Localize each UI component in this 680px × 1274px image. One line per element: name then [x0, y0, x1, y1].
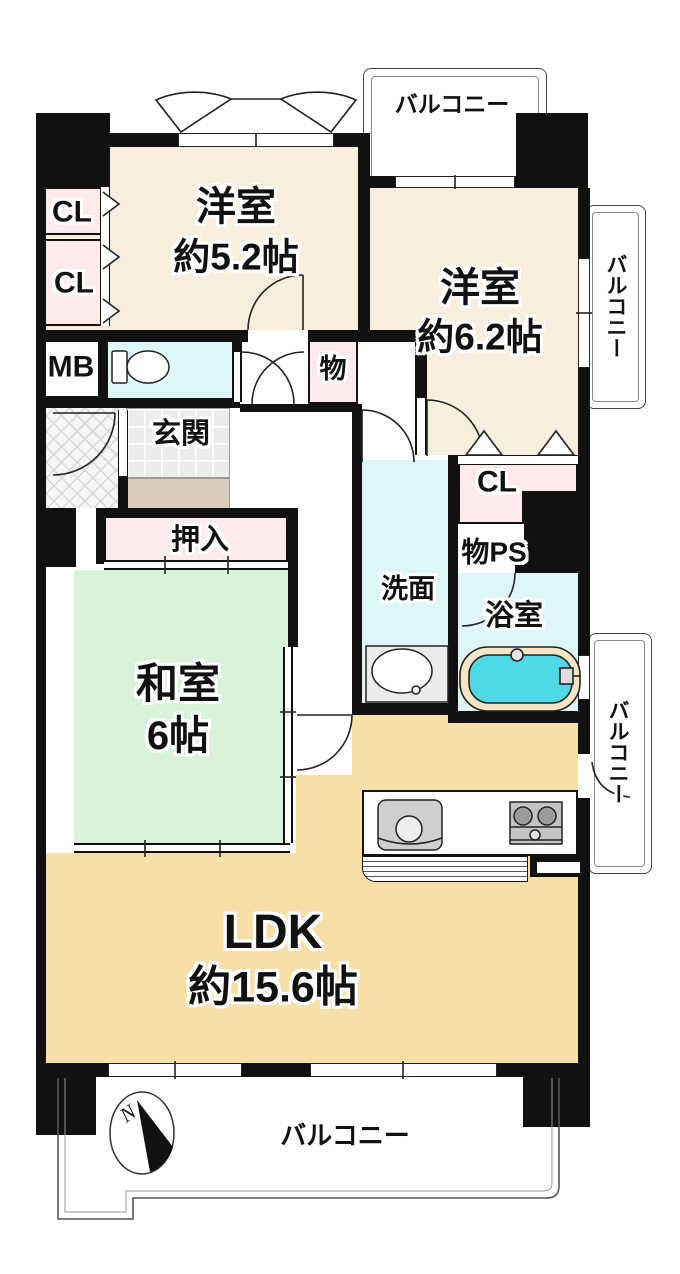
wall-under-toilet — [36, 398, 240, 408]
fusuma-tatami-bottom — [74, 843, 290, 853]
fusuma-oshiire — [104, 560, 288, 570]
wall-oshiire-left — [96, 516, 104, 564]
label-balcony-top: バルコニー — [395, 92, 510, 116]
wall-left — [36, 113, 46, 1075]
closet-cl-right-top — [458, 463, 578, 493]
window-bathroom — [578, 655, 590, 700]
door-ldk-balcony — [578, 752, 590, 800]
label-meter-box: MB — [48, 351, 95, 383]
label-futon-closet: 押入 — [171, 525, 229, 555]
floor-plan: N 洋室 約5.2帖 洋室 約6.2帖 和室 6帖 LDK 約15.6帖 CL … — [0, 0, 680, 1274]
wall-above-oshiire — [96, 508, 298, 518]
wall-bath-bottom — [448, 711, 590, 723]
wall-toilet-right-stub — [232, 336, 242, 352]
entrance-porch — [44, 408, 126, 508]
kitchen-counter-front — [362, 856, 528, 882]
wall-right-3 — [578, 700, 590, 752]
wall-washroom-left — [352, 412, 362, 715]
label-western52-name: 洋室 — [196, 186, 276, 228]
label-cl-2: CL — [54, 267, 94, 299]
compass-north-label: N — [114, 1099, 141, 1128]
label-ldk-name: LDK — [224, 908, 323, 958]
bay-window-sill — [178, 133, 334, 147]
wall-bath-left — [448, 463, 458, 713]
wall-w52-bottom-b — [308, 330, 427, 342]
label-tatami-name: 和室 — [136, 662, 220, 706]
hallway-upper — [358, 342, 415, 455]
window-w62-top — [395, 176, 515, 188]
label-western62-size: 約6.2帖 — [417, 319, 542, 358]
bay-window-fan-right — [281, 92, 356, 132]
door-arc-toilet — [242, 352, 294, 404]
window-ldk-bottom-b — [310, 1063, 497, 1077]
wall-right-4 — [578, 800, 590, 1075]
label-bathroom: 浴室 — [485, 601, 543, 631]
wall-oshiire-right — [288, 508, 298, 570]
wall-corner-tr — [516, 113, 588, 185]
wall-right-2 — [578, 368, 590, 655]
wall-right-1 — [578, 188, 590, 258]
door-gap-w62 — [415, 398, 427, 455]
label-entrance: 玄関 — [152, 419, 210, 449]
wall-corner-br — [523, 1072, 590, 1127]
label-storage: 物 — [320, 355, 347, 383]
window-w62-right — [578, 258, 590, 368]
window-ldk-bottom-a — [108, 1063, 242, 1077]
label-storage-ps: 物PS — [461, 537, 526, 566]
wall-washroom-bottom — [352, 703, 458, 715]
label-washroom: 洗面 — [381, 575, 435, 603]
wall-hall-top — [240, 404, 362, 412]
room-bathroom — [458, 573, 578, 711]
label-western52-size: 約5.2帖 — [173, 239, 298, 278]
door-arc-storage — [252, 352, 304, 404]
label-cl-right: CL — [477, 466, 517, 498]
label-ldk-size: 約15.6帖 — [188, 965, 358, 1010]
label-balcony-bottom: バルコニー — [280, 1122, 409, 1149]
label-balcony-right-upper: バルコニー — [604, 254, 626, 359]
wall-mb-toilet — [100, 336, 108, 402]
compass-icon: N — [110, 1092, 174, 1174]
bay-window-fan-left — [156, 92, 231, 132]
kitchen-right-notch — [537, 862, 580, 873]
wall-corner-tl — [36, 113, 110, 187]
wall-hall-tatami — [288, 570, 298, 647]
kitchen-counter — [362, 790, 578, 856]
fusuma-tatami-right — [283, 647, 293, 843]
wall-block-left-mid — [36, 508, 76, 567]
label-tatami-size: 6帖 — [147, 715, 209, 757]
wall-w52-bottom-a — [36, 330, 248, 342]
pipe-space-block — [524, 492, 578, 573]
wall-top-a — [100, 133, 180, 147]
label-balcony-right-lower: バルコニー — [606, 700, 628, 805]
wall-bottom-b — [242, 1063, 310, 1077]
label-cl-1: CL — [52, 196, 92, 228]
wall-corner-bl — [36, 1075, 96, 1135]
wall-w52-right — [358, 133, 370, 342]
closet-track-left — [100, 187, 110, 326]
label-western62-name: 洋室 — [440, 267, 520, 309]
room-toilet — [108, 336, 232, 398]
door-gap-toilet — [232, 352, 242, 402]
entrance-door-track — [118, 410, 128, 476]
room-ldk-door-area — [296, 775, 352, 853]
closet-track-right — [458, 455, 578, 465]
door-arc-ldk — [297, 715, 352, 770]
